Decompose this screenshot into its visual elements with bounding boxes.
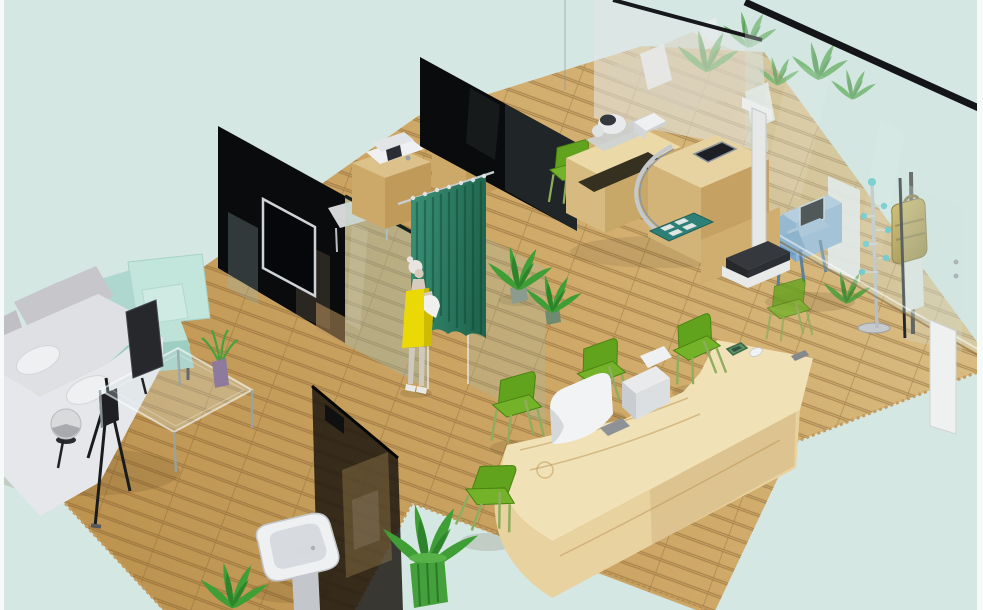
- mannequin-shadow: [400, 388, 432, 398]
- tap-knob: [311, 546, 315, 550]
- leg: [419, 347, 425, 386]
- rendered-scene: [0, 0, 983, 610]
- purple-vase: [212, 358, 229, 388]
- hair-bun: [407, 256, 413, 262]
- bp-cuff: [592, 125, 604, 137]
- interior-render-canvas: [0, 0, 983, 610]
- white-pillar: [930, 320, 956, 434]
- left-border-strip: [0, 0, 4, 610]
- face: [414, 269, 423, 278]
- stadiometer-pole: [752, 108, 766, 258]
- bp-monitor-dial: [600, 115, 616, 126]
- right-border-strip: [977, 0, 983, 610]
- reflection-highlight: [352, 490, 380, 550]
- coat-rack-base: [858, 323, 890, 333]
- printer-button: [406, 156, 411, 161]
- dark-monitor: [126, 300, 163, 378]
- pot-rim: [409, 553, 447, 563]
